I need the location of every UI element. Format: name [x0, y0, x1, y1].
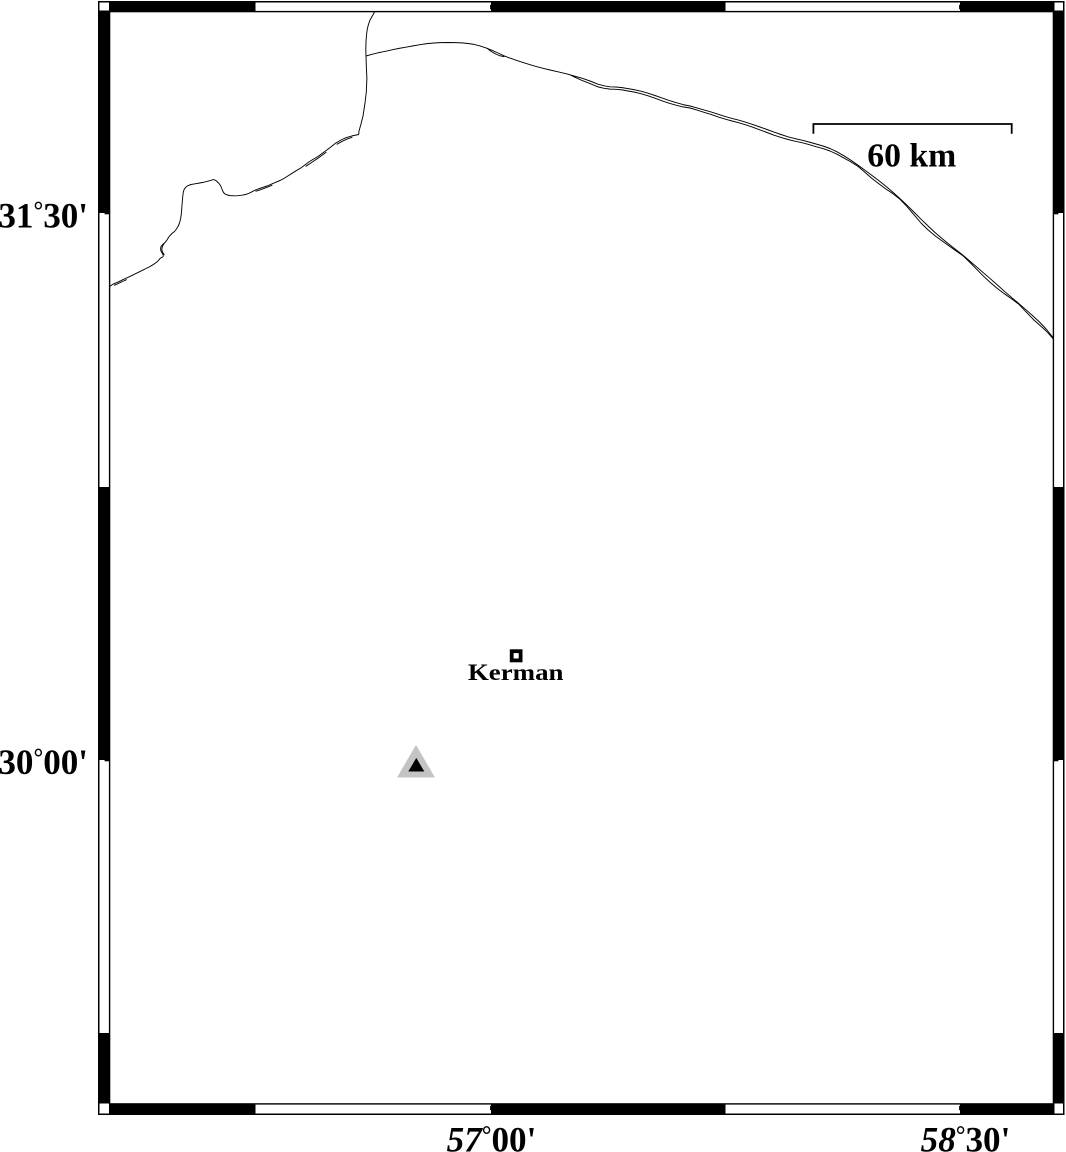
- svg-text:57°00': 57°00': [447, 1119, 537, 1152]
- svg-text:30°00': 30°00': [0, 742, 88, 783]
- svg-text:60 km: 60 km: [867, 137, 956, 174]
- svg-text:Kerman: Kerman: [468, 661, 564, 686]
- svg-text:31°30': 31°30': [0, 195, 88, 236]
- svg-text:58°30': 58°30': [921, 1119, 1011, 1152]
